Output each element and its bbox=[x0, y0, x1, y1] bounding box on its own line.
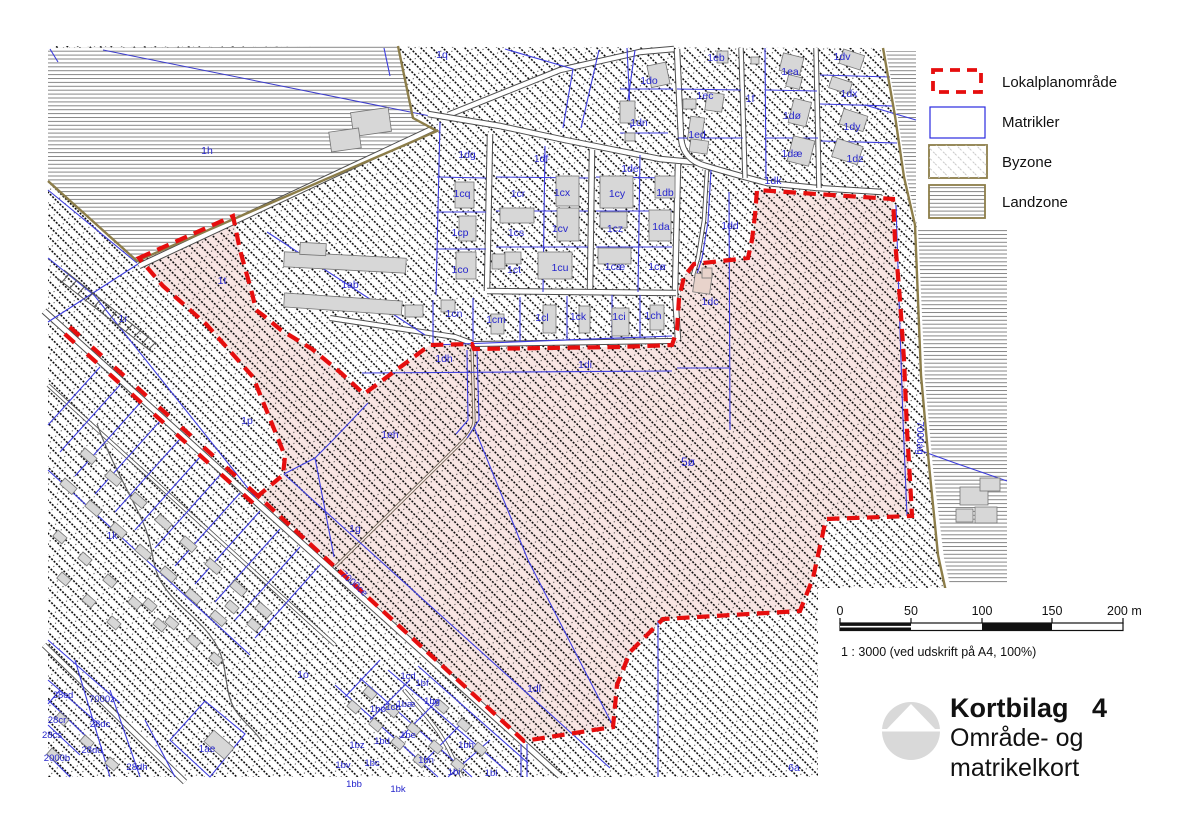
svg-text:1cz: 1cz bbox=[607, 223, 623, 235]
svg-text:1cy: 1cy bbox=[609, 188, 626, 200]
svg-text:1g: 1g bbox=[349, 523, 361, 535]
svg-text:1cp: 1cp bbox=[452, 227, 469, 239]
svg-text:1bi: 1bi bbox=[448, 767, 461, 778]
svg-text:50: 50 bbox=[904, 604, 918, 618]
svg-text:100: 100 bbox=[972, 604, 993, 618]
svg-text:1df: 1df bbox=[534, 153, 549, 165]
svg-text:matrikelkort: matrikelkort bbox=[950, 754, 1079, 782]
svg-text:1h: 1h bbox=[201, 145, 213, 157]
svg-text:1r: 1r bbox=[118, 313, 128, 325]
svg-text:1bv: 1bv bbox=[335, 760, 351, 771]
svg-text:1bk: 1bk bbox=[390, 784, 406, 795]
svg-text:1o: 1o bbox=[297, 669, 309, 681]
svg-text:1ed: 1ed bbox=[688, 129, 706, 141]
svg-text:1ch: 1ch bbox=[645, 310, 662, 322]
svg-text:Kortbilag: Kortbilag bbox=[950, 693, 1069, 723]
svg-text:Matrikler: Matrikler bbox=[1002, 114, 1060, 131]
svg-text:1t: 1t bbox=[218, 275, 227, 287]
svg-text:5ø: 5ø bbox=[681, 455, 696, 469]
svg-text:1ci: 1ci bbox=[612, 311, 625, 323]
svg-text:1dl: 1dl bbox=[527, 683, 541, 695]
svg-text:1f: 1f bbox=[746, 93, 755, 105]
svg-text:1ab: 1ab bbox=[341, 279, 359, 291]
svg-text:1dz: 1dz bbox=[847, 153, 864, 165]
svg-text:1ea: 1ea bbox=[781, 66, 799, 78]
svg-text:1di: 1di bbox=[578, 359, 592, 371]
svg-text:6a: 6a bbox=[788, 762, 800, 774]
svg-text:1dv: 1dv bbox=[834, 51, 852, 63]
svg-text:Område- og: Område- og bbox=[950, 724, 1083, 752]
svg-text:1ck: 1ck bbox=[570, 311, 587, 323]
svg-text:1bg: 1bg bbox=[424, 696, 440, 707]
svg-text:2000b: 2000b bbox=[44, 753, 70, 764]
svg-text:28cr: 28cr bbox=[48, 715, 66, 726]
svg-text:1dh: 1dh bbox=[435, 353, 453, 365]
svg-text:1bh: 1bh bbox=[458, 740, 474, 751]
svg-text:1dæ: 1dæ bbox=[781, 148, 802, 160]
svg-text:1cæ: 1cæ bbox=[605, 261, 625, 273]
svg-text:1q: 1q bbox=[436, 49, 448, 61]
svg-text:1dx: 1dx bbox=[841, 88, 859, 100]
svg-text:1cø: 1cø bbox=[648, 261, 666, 273]
svg-text:1dg: 1dg bbox=[458, 149, 476, 161]
svg-text:7000ag: 7000ag bbox=[914, 421, 925, 454]
svg-text:1bl: 1bl bbox=[485, 768, 498, 779]
svg-text:1cn: 1cn bbox=[446, 308, 463, 320]
svg-text:1ae: 1ae bbox=[199, 744, 216, 755]
svg-text:1ec: 1ec bbox=[697, 90, 714, 102]
svg-text:1dc: 1dc bbox=[702, 296, 719, 308]
svg-text:4: 4 bbox=[1092, 693, 1107, 723]
svg-text:Byzone: Byzone bbox=[1002, 154, 1052, 171]
svg-text:1do: 1do bbox=[640, 75, 658, 87]
svg-text:Landzone: Landzone bbox=[1002, 194, 1068, 211]
svg-text:1cv: 1cv bbox=[552, 223, 569, 235]
svg-text:1dø: 1dø bbox=[783, 110, 802, 122]
svg-text:1da: 1da bbox=[652, 221, 670, 233]
svg-text:1bb: 1bb bbox=[346, 779, 362, 790]
svg-text:1be: 1be bbox=[400, 730, 416, 741]
svg-text:1dn: 1dn bbox=[630, 117, 648, 129]
svg-text:1bd: 1bd bbox=[374, 736, 390, 747]
svg-text:28dd: 28dd bbox=[81, 745, 102, 756]
svg-text:1cd: 1cd bbox=[400, 671, 415, 682]
svg-text:1cu: 1cu bbox=[552, 262, 569, 274]
svg-text:1cm: 1cm bbox=[486, 314, 506, 326]
svg-text:1dd: 1dd bbox=[721, 220, 739, 232]
svg-text:1bn: 1bn bbox=[418, 755, 434, 766]
svg-text:Lokalplanområde: Lokalplanområde bbox=[1002, 74, 1117, 91]
svg-text:28dh: 28dh bbox=[126, 762, 147, 773]
svg-text:1co: 1co bbox=[452, 264, 469, 276]
svg-text:1cr: 1cr bbox=[511, 188, 526, 200]
svg-text:1ct: 1ct bbox=[507, 264, 521, 276]
svg-text:150: 150 bbox=[1042, 604, 1063, 618]
svg-text:1bæ: 1bæ bbox=[396, 699, 416, 710]
svg-text:28dc: 28dc bbox=[90, 719, 111, 730]
svg-text:1cx: 1cx bbox=[554, 187, 571, 199]
svg-text:1cs: 1cs bbox=[508, 227, 524, 239]
svg-text:1cq: 1cq bbox=[454, 188, 471, 200]
svg-text:0: 0 bbox=[837, 604, 844, 618]
svg-text:1cl: 1cl bbox=[535, 312, 548, 324]
svg-text:1de: 1de bbox=[621, 163, 639, 175]
svg-text:1eh: 1eh bbox=[381, 429, 399, 441]
svg-text:200 m: 200 m bbox=[1107, 604, 1142, 618]
svg-text:1bz: 1bz bbox=[349, 740, 365, 751]
svg-text:1dk: 1dk bbox=[765, 175, 783, 187]
svg-text:1eb: 1eb bbox=[707, 52, 725, 64]
svg-text:1k: 1k bbox=[106, 530, 118, 542]
svg-text:28cd: 28cd bbox=[53, 690, 74, 701]
svg-text:1 : 3000 (ved udskrift på A4,: 1 : 3000 (ved udskrift på A4, 100%) bbox=[841, 645, 1036, 659]
svg-text:1bf: 1bf bbox=[415, 678, 429, 689]
svg-text:1bø: 1bø bbox=[370, 704, 387, 715]
svg-text:1bc: 1bc bbox=[364, 758, 380, 769]
svg-text:28cs: 28cs bbox=[42, 730, 62, 741]
svg-text:1dy: 1dy bbox=[844, 121, 862, 133]
svg-text:1p: 1p bbox=[241, 415, 253, 427]
svg-text:1db: 1db bbox=[656, 187, 674, 199]
svg-text:7000z: 7000z bbox=[89, 694, 115, 705]
